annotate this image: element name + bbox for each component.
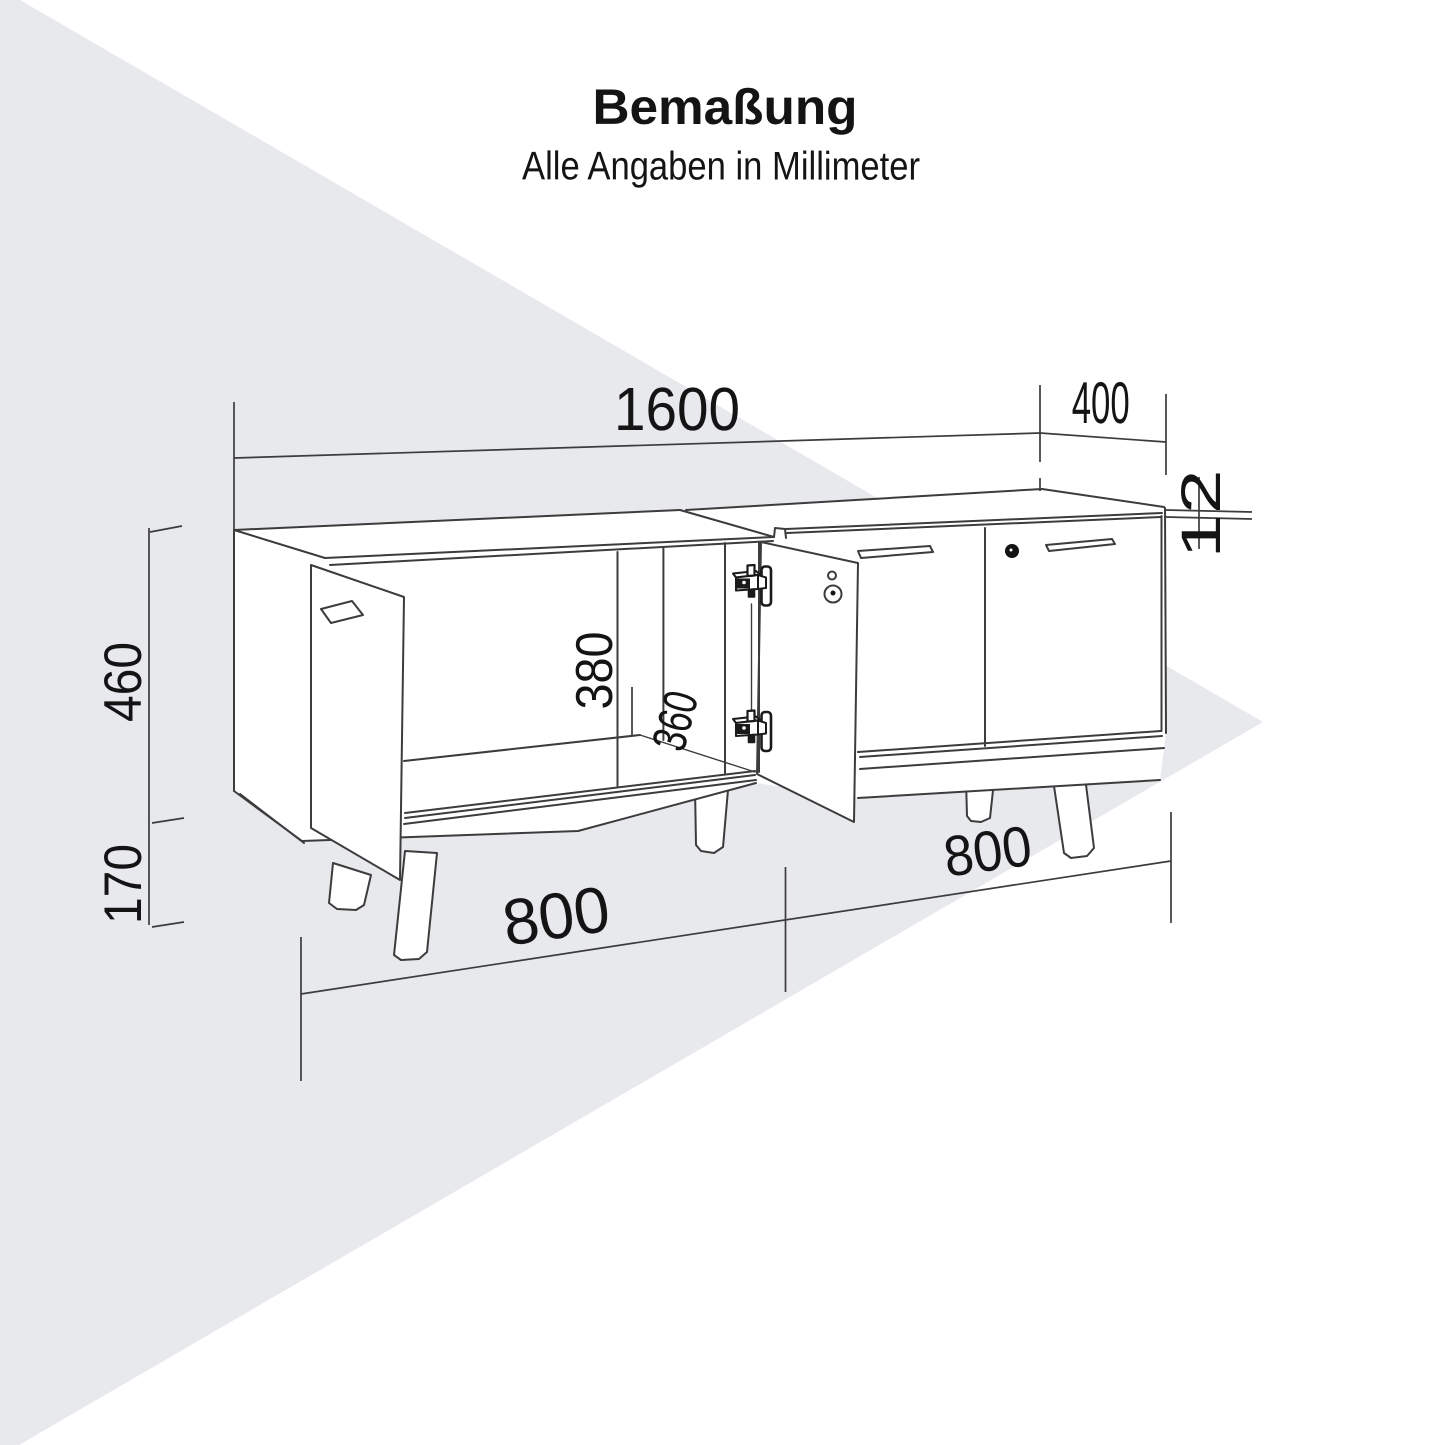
- svg-text:380: 380: [566, 632, 624, 710]
- svg-text:800: 800: [498, 872, 615, 960]
- svg-text:400: 400: [1072, 370, 1130, 436]
- svg-text:800: 800: [940, 814, 1036, 890]
- svg-text:170: 170: [94, 844, 153, 924]
- svg-text:460: 460: [94, 642, 153, 722]
- svg-text:Bemaßung: Bemaßung: [592, 79, 857, 135]
- svg-text:Alle Angaben in Millimeter: Alle Angaben in Millimeter: [522, 144, 920, 188]
- svg-text:1600: 1600: [614, 375, 740, 443]
- svg-text:12: 12: [1169, 470, 1232, 559]
